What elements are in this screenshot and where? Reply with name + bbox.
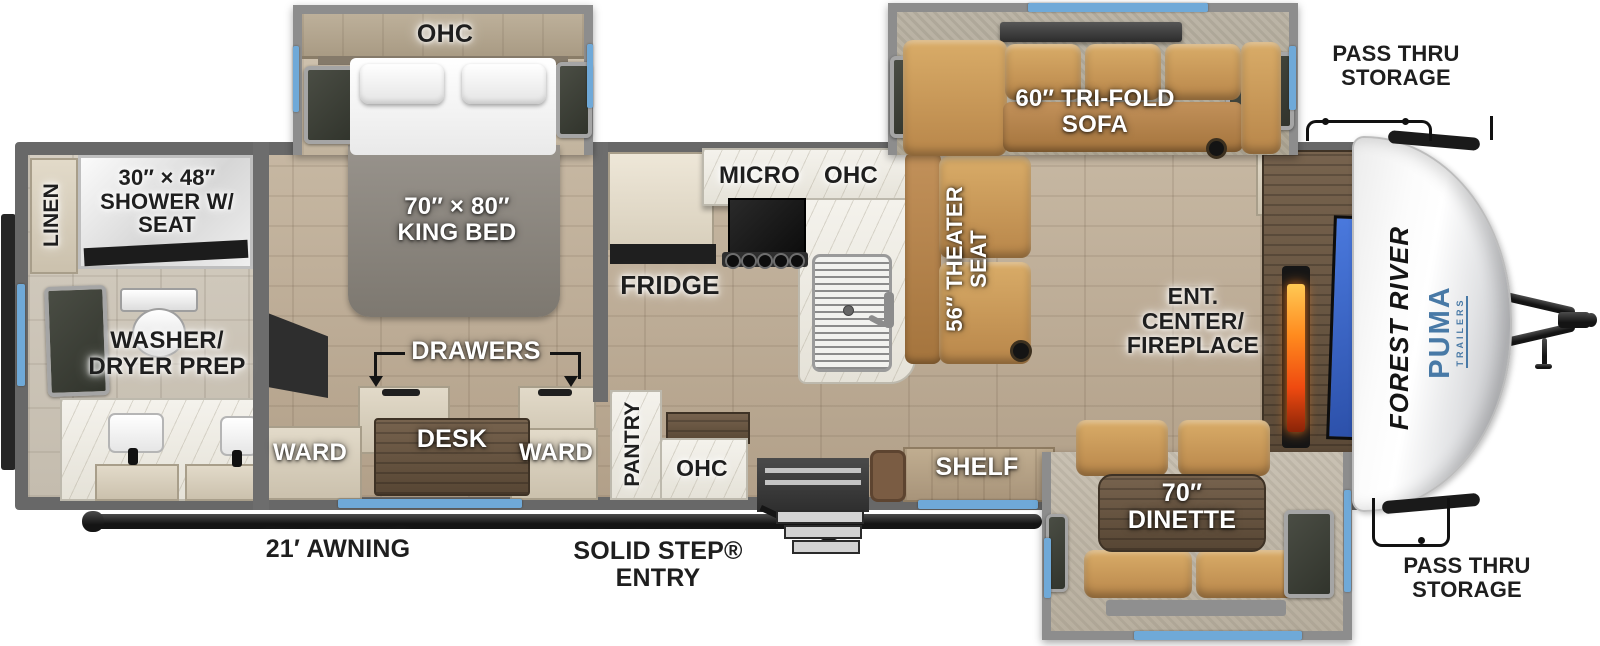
label-desk: DESK xyxy=(402,426,502,453)
sink-drain xyxy=(843,305,854,316)
label-kitchen-ohc-lower: OHC xyxy=(662,456,742,481)
vanity-faucet-right xyxy=(232,450,242,467)
label-kitchen-ohc-upper: OHC xyxy=(815,163,887,189)
entry-tread-strip-1 xyxy=(765,468,861,473)
entry-threshold xyxy=(757,458,869,512)
dinette-window-right xyxy=(1284,510,1334,598)
sofa-cupholder-icon xyxy=(1206,138,1227,159)
slide-topper-bar xyxy=(1000,22,1182,42)
dinette-back-cushion-right xyxy=(1178,420,1270,476)
dinette-base xyxy=(1106,600,1286,616)
passthru-bracket-bottom xyxy=(1372,498,1450,547)
label-fridge: FRIDGE xyxy=(600,272,740,300)
sofa-window-strip-right xyxy=(1289,46,1296,110)
bathroom-window-strip xyxy=(17,284,25,386)
dinette-window-strip-left xyxy=(1044,538,1051,598)
label-ward-left: WARD xyxy=(262,440,358,466)
label-ward-right: WARD xyxy=(514,440,598,466)
label-micro: MICRO xyxy=(712,163,807,189)
dinette-window-strip-bottom xyxy=(1134,631,1302,640)
label-pantry: PANTRY xyxy=(622,384,642,504)
burner-icon xyxy=(725,253,741,269)
fridge xyxy=(608,152,714,250)
rear-bumper xyxy=(1,214,16,470)
awning-bar xyxy=(92,514,1042,529)
burner-icon xyxy=(773,253,789,269)
passthru-bracket-dot xyxy=(1402,118,1409,125)
label-entry: SOLID STEP® ENTRY xyxy=(562,538,754,592)
label-washer-dryer: WASHER/ DRYER PREP xyxy=(78,328,256,379)
floorplan-canvas: FOREST RIVER PUMA TRAILERS OHC LINEN 30″… xyxy=(0,0,1600,646)
entry-step-tread-1 xyxy=(776,510,864,524)
vanity-sink-left xyxy=(108,413,164,453)
vanity-base-left xyxy=(95,464,179,501)
bedroom-window-strip-left xyxy=(293,46,299,112)
drawers-arrow-right xyxy=(550,352,581,379)
kitchen-range xyxy=(728,198,806,258)
label-bedroom-ohc: OHC xyxy=(395,21,495,48)
label-awning: 21′ AWNING xyxy=(248,536,428,563)
entry-step-tread-2 xyxy=(784,525,862,539)
passthru-bracket-dot xyxy=(1322,118,1329,125)
vanity-faucet-left xyxy=(128,448,138,465)
drawer-handle-left xyxy=(382,389,420,396)
label-king-bed: 70″ × 80″ KING BED xyxy=(386,194,528,245)
label-trifold-sofa: 60″ TRI-FOLD SOFA xyxy=(1000,86,1190,137)
awning-endcap xyxy=(82,511,104,532)
dinette-bench-left xyxy=(1084,550,1192,598)
label-shelf: SHELF xyxy=(906,454,1048,481)
drawers-arrowhead-left xyxy=(369,376,383,387)
counter-end-cabinet xyxy=(870,450,906,502)
label-theater-seat: 56″ THEATER SEAT xyxy=(943,179,989,339)
label-pass-thru-top: PASS THRU STORAGE xyxy=(1320,42,1472,89)
burner-icon xyxy=(757,253,773,269)
drawer-handle-right xyxy=(538,389,572,396)
entry-tread-strip-2 xyxy=(765,480,861,485)
label-dinette: 70″ DINETTE xyxy=(1124,480,1240,534)
bed-pillow-right xyxy=(462,64,546,104)
fireplace-flame xyxy=(1287,284,1305,432)
bed-pillow-left xyxy=(360,64,444,104)
sofa-window-strip-top xyxy=(1028,3,1208,12)
dinette-window-strip-right xyxy=(1344,490,1351,592)
hitch-ball xyxy=(1585,313,1597,327)
label-ent-center: ENT. CENTER/ FIREPLACE xyxy=(1118,284,1268,358)
theater-seat-back xyxy=(905,152,941,364)
cap-antenna xyxy=(1490,116,1493,140)
drawers-arrowhead-right xyxy=(564,376,578,387)
dinette-back-cushion-left xyxy=(1076,420,1168,476)
fridge-opening xyxy=(610,244,716,264)
bedroom-bottom-window-strip xyxy=(338,499,522,508)
label-pass-thru-bottom: PASS THRU STORAGE xyxy=(1388,554,1546,601)
sofa-armrest-right xyxy=(1241,42,1281,154)
brand-model-sub: TRAILERS xyxy=(1456,296,1468,368)
passthru-bracket-dot xyxy=(1418,537,1425,544)
entry-step-tread-3 xyxy=(792,540,860,554)
shelf-window-strip xyxy=(918,500,1038,509)
bedroom-slide-window-left xyxy=(304,66,356,144)
vanity-base-right xyxy=(185,464,259,501)
theater-cupholder-icon xyxy=(1010,340,1032,362)
label-drawers: DRAWERS xyxy=(400,338,552,365)
label-linen: LINEN xyxy=(41,161,63,269)
hitch-jack-foot xyxy=(1535,364,1552,369)
sofa-corner-section xyxy=(903,40,1007,156)
burner-icon xyxy=(789,253,805,269)
hitch-jack xyxy=(1542,338,1547,366)
brand-model-logo: PUMA TRAILERS xyxy=(1425,267,1479,397)
burner-icon xyxy=(741,253,757,269)
label-shower: 30″ × 48″ SHOWER W/ SEAT xyxy=(96,166,238,237)
bedroom-window-strip-right xyxy=(587,44,593,108)
brand-model: PUMA xyxy=(1425,267,1456,397)
brand-manufacturer: FOREST RIVER xyxy=(1386,188,1418,468)
